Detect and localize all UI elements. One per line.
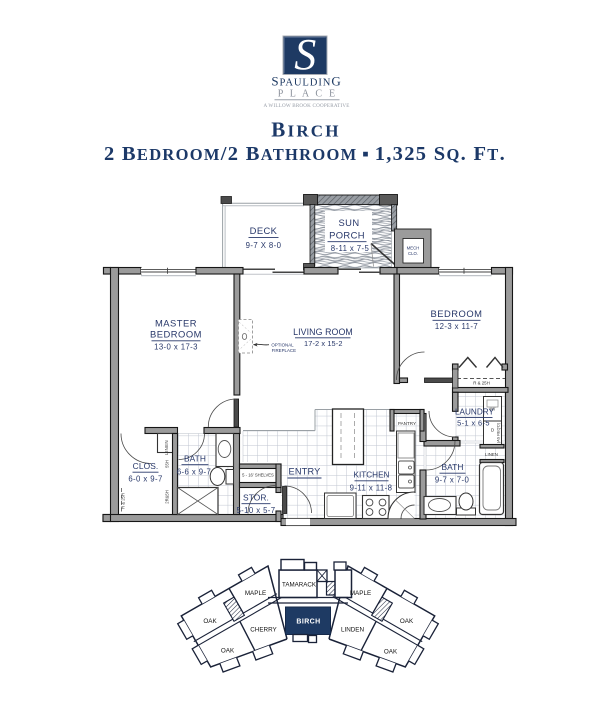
svg-text:A WILLOW BROOK COOPERATIVE: A WILLOW BROOK COOPERATIVE (263, 103, 349, 109)
svg-text:DECK: DECK (250, 225, 278, 236)
svg-text:OAK: OAK (203, 618, 217, 625)
svg-text:CHERRY: CHERRY (250, 627, 277, 634)
svg-text:R & 25H: R & 25H (473, 380, 490, 385)
svg-text:8-11 x 7-5: 8-11 x 7-5 (331, 244, 370, 253)
svg-text:MECH: MECH (407, 246, 420, 251)
svg-text:5-1 x 6-5: 5-1 x 6-5 (457, 419, 490, 428)
svg-text:CLOS.: CLOS. (133, 461, 159, 471)
svg-text:BATH: BATH (184, 454, 206, 464)
svg-text:OAK: OAK (384, 649, 398, 656)
svg-text:STOR.: STOR. (243, 493, 269, 503)
svg-text:6-6 x 9-7: 6-6 x 9-7 (177, 468, 211, 477)
svg-text:LINEN: LINEN (164, 440, 169, 455)
svg-text:2R&5H: 2R&5H (165, 490, 170, 504)
svg-text:9-7 x 7-0: 9-7 x 7-0 (435, 476, 470, 485)
svg-text:OAK: OAK (221, 648, 235, 655)
svg-text:17-2 x 15-2: 17-2 x 15-2 (304, 339, 343, 348)
svg-text:9-7 X 8-0: 9-7 X 8-0 (246, 241, 282, 250)
svg-text:MASTER: MASTER (155, 318, 197, 329)
svg-text:55H: 55H (165, 460, 170, 468)
svg-text:PANTRY: PANTRY (398, 421, 416, 426)
svg-text:5 - 16' SHELVES: 5 - 16' SHELVES (242, 473, 274, 478)
svg-text:BATH: BATH (441, 462, 463, 472)
svg-text:ENTRY: ENTRY (289, 467, 321, 477)
svg-text:LAUNDRY: LAUNDRY (455, 408, 495, 417)
svg-text:R & 25H: R & 25H (121, 493, 126, 509)
svg-text:CLO.: CLO. (408, 251, 418, 256)
svg-text:BIRCH: BIRCH (271, 118, 340, 142)
svg-text:BEDROOM: BEDROOM (431, 308, 483, 319)
svg-text:LIVING ROOM: LIVING ROOM (293, 327, 353, 337)
svg-text:SUN: SUN (339, 217, 360, 228)
svg-text:S: S (294, 30, 316, 79)
svg-text:LINEN: LINEN (485, 452, 498, 457)
svg-text:OAK: OAK (400, 618, 414, 625)
svg-text:OPTIONAL: OPTIONAL (271, 342, 294, 347)
svg-text:6-0 x 9-7: 6-0 x 9-7 (128, 475, 162, 484)
svg-text:BIRCH: BIRCH (296, 618, 320, 625)
svg-text:MAPLE: MAPLE (245, 590, 266, 597)
svg-text:FIREPLACE: FIREPLACE (272, 348, 296, 353)
svg-text:9-11 x 11-8: 9-11 x 11-8 (350, 484, 393, 493)
svg-text:MAPLE: MAPLE (350, 590, 371, 597)
svg-text:LINDEN: LINDEN (341, 627, 365, 634)
svg-text:(AS REQ'D): (AS REQ'D) (497, 422, 501, 443)
svg-text:5-10 x 5-7: 5-10 x 5-7 (236, 506, 275, 515)
svg-text:P L A C E: P L A C E (278, 89, 338, 100)
svg-text:BEDROOM: BEDROOM (150, 329, 202, 340)
svg-text:12-3 x 11-7: 12-3 x 11-7 (435, 322, 478, 331)
svg-text:PORCH: PORCH (329, 230, 365, 241)
svg-text:TAMARACK: TAMARACK (282, 581, 317, 588)
svg-text:13-0 x 17-3: 13-0 x 17-3 (154, 343, 198, 352)
svg-text:KITCHEN: KITCHEN (354, 471, 390, 480)
svg-text:2 BEDROOM/2 BATHROOM ▪ 1,325 S: 2 BEDROOM/2 BATHROOM ▪ 1,325 SQ. FT. (104, 143, 506, 165)
